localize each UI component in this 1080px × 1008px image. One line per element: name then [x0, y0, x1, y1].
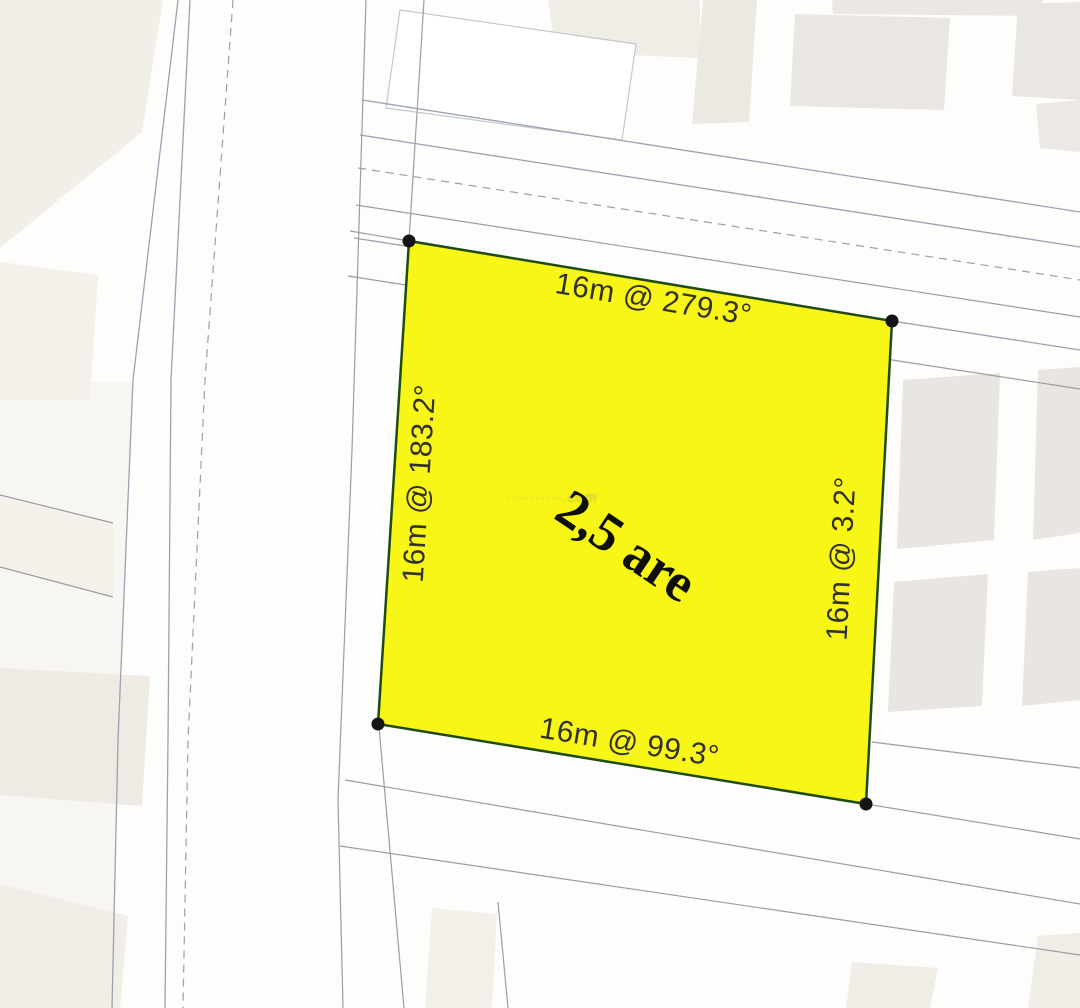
map-block: [1022, 568, 1080, 706]
map-block: [692, 0, 757, 124]
map-block: [888, 574, 988, 712]
map-canvas: ··········.com 2,5 are 16m @ 279.3° 16m …: [0, 0, 1080, 1008]
map-block: [1033, 367, 1080, 540]
map-block: [832, 0, 1043, 16]
map-block: [0, 668, 150, 806]
map-block: [846, 962, 938, 1008]
parcel-vertex-handle[interactable]: [886, 315, 899, 328]
map-block: [1036, 100, 1080, 152]
map-block: [425, 908, 497, 1008]
parcel-vertex-handle[interactable]: [860, 798, 873, 811]
map-block: [0, 262, 98, 400]
map-block: [790, 14, 950, 110]
parcel-vertex-handle[interactable]: [372, 718, 385, 731]
map-block: [1012, 2, 1080, 100]
parcel-vertex-handle[interactable]: [403, 235, 416, 248]
map-block: [897, 373, 1000, 549]
